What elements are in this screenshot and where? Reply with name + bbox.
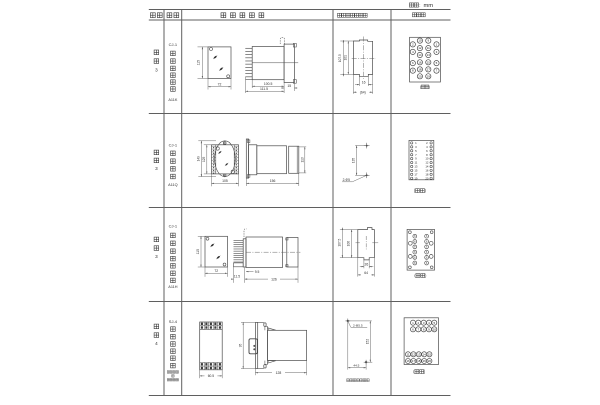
svg-text:17: 17 bbox=[412, 359, 416, 363]
svg-text:72: 72 bbox=[218, 82, 222, 86]
svg-text:100.5: 100.5 bbox=[264, 82, 273, 86]
svg-text:152: 152 bbox=[365, 339, 369, 345]
svg-text:106: 106 bbox=[347, 241, 351, 247]
svg-text:115: 115 bbox=[197, 60, 201, 66]
svg-text:15: 15 bbox=[287, 84, 291, 88]
svg-text:11.5: 11.5 bbox=[234, 274, 240, 278]
svg-text:107.5: 107.5 bbox=[338, 238, 342, 246]
svg-text:20: 20 bbox=[428, 359, 432, 363]
svg-text:128: 128 bbox=[276, 371, 282, 375]
svg-text:13: 13 bbox=[427, 53, 431, 57]
svg-text:12: 12 bbox=[412, 352, 416, 356]
svg-text:95: 95 bbox=[238, 343, 242, 347]
svg-text:2-Φ5.5: 2-Φ5.5 bbox=[353, 323, 363, 327]
svg-text:126: 126 bbox=[271, 277, 277, 281]
svg-text:115: 115 bbox=[196, 249, 200, 255]
svg-text:19: 19 bbox=[414, 176, 418, 180]
svg-text:14: 14 bbox=[418, 53, 422, 57]
svg-text:11: 11 bbox=[427, 46, 430, 50]
svg-text:SJ-4: SJ-4 bbox=[169, 319, 178, 324]
svg-text:10: 10 bbox=[433, 327, 437, 331]
svg-text:12: 12 bbox=[418, 46, 422, 50]
svg-text:13: 13 bbox=[417, 352, 421, 356]
svg-text:15: 15 bbox=[427, 60, 431, 64]
svg-text:14: 14 bbox=[423, 352, 427, 356]
svg-text:mm: mm bbox=[423, 3, 433, 9]
svg-text:CJ-1: CJ-1 bbox=[169, 223, 178, 228]
svg-text:16: 16 bbox=[406, 359, 410, 363]
svg-text:60.5: 60.5 bbox=[208, 374, 215, 378]
svg-text:15: 15 bbox=[428, 352, 432, 356]
svg-text:10: 10 bbox=[418, 39, 422, 43]
svg-text:CJ-1: CJ-1 bbox=[169, 142, 178, 147]
svg-text:19: 19 bbox=[423, 359, 427, 363]
svg-text:135: 135 bbox=[352, 158, 356, 164]
svg-text:3: 3 bbox=[155, 254, 158, 259]
svg-text:4: 4 bbox=[155, 341, 158, 346]
svg-text:20: 20 bbox=[425, 176, 429, 180]
svg-text:9.5: 9.5 bbox=[255, 270, 260, 274]
svg-text:17: 17 bbox=[427, 68, 431, 72]
svg-text:72: 72 bbox=[214, 269, 218, 273]
svg-text:44.5: 44.5 bbox=[353, 364, 359, 368]
svg-text:64: 64 bbox=[364, 271, 368, 275]
svg-text:A11H: A11H bbox=[168, 285, 177, 289]
svg-text:19: 19 bbox=[427, 74, 431, 78]
svg-text:20: 20 bbox=[418, 74, 422, 78]
svg-text:156: 156 bbox=[270, 179, 276, 183]
svg-text:16: 16 bbox=[418, 60, 422, 64]
svg-text:101: 101 bbox=[343, 55, 347, 61]
svg-text:A11K: A11K bbox=[168, 98, 177, 102]
svg-text:125: 125 bbox=[202, 156, 206, 162]
svg-text:3: 3 bbox=[155, 166, 158, 171]
svg-text:111.5: 111.5 bbox=[260, 87, 268, 91]
svg-text::: : bbox=[419, 3, 420, 8]
svg-text:26: 26 bbox=[365, 262, 369, 266]
svg-text:11: 11 bbox=[406, 352, 409, 356]
svg-text:16: 16 bbox=[362, 80, 366, 84]
svg-text:(64): (64) bbox=[360, 91, 366, 95]
svg-text:149: 149 bbox=[197, 156, 201, 162]
svg-text:107.5: 107.5 bbox=[338, 54, 342, 62]
svg-text:18: 18 bbox=[418, 68, 422, 72]
svg-text:3: 3 bbox=[155, 68, 158, 73]
svg-text:A11Q: A11Q bbox=[168, 183, 177, 187]
svg-text:113: 113 bbox=[301, 157, 305, 162]
svg-text:CJ-1: CJ-1 bbox=[169, 42, 178, 47]
svg-text:2-Φ5: 2-Φ5 bbox=[343, 178, 351, 182]
svg-text:105: 105 bbox=[222, 179, 228, 183]
svg-text:18: 18 bbox=[417, 359, 421, 363]
